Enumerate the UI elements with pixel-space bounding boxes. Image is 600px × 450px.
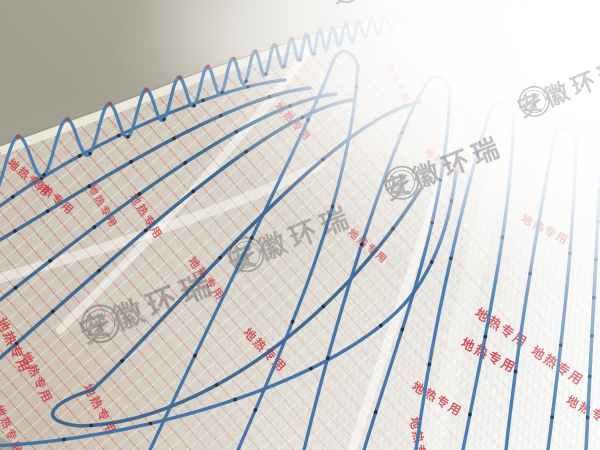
watermark: 安徽环瑞 [220, 228, 273, 281]
watermark: 安徽环瑞 [323, 0, 369, 10]
photo-underfloor-heating: 地热专用地热专用地热专用地热专用地热专用地热专用地热专用地热专用地热专用地热专用… [0, 0, 600, 450]
watermark: 安徽环瑞 [511, 78, 557, 124]
watermark-text: 安徽环瑞 [323, 0, 443, 10]
watermark-text: 安徽环瑞 [220, 194, 358, 281]
watermark-text: 安徽环瑞 [72, 258, 222, 353]
watermark-text: 安徽环瑞 [377, 125, 509, 208]
watermark-layer: 安徽环瑞 安徽环瑞 安徽环瑞 安徽环瑞 安徽环瑞 [0, 0, 600, 450]
watermark-text: 安徽环瑞 [511, 49, 600, 125]
watermark: 安徽环瑞 [377, 158, 427, 208]
watermark: 安徽环瑞 [72, 295, 129, 352]
